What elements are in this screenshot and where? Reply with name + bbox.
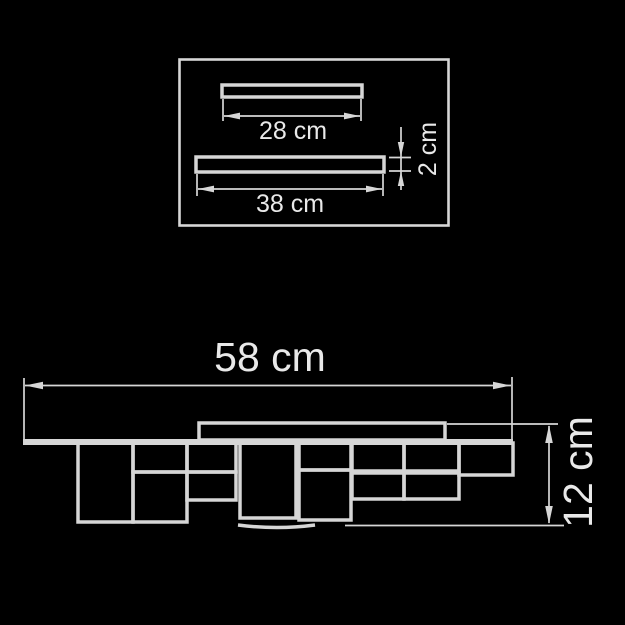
crystal-box — [299, 470, 351, 520]
crystal-box — [133, 443, 187, 472]
top-view-panel: 28 cm 38 cm 2 cm — [180, 60, 449, 226]
dim-58cm-label: 58 cm — [214, 334, 326, 380]
crystal-box — [187, 472, 236, 500]
arrow-left-icon — [25, 382, 43, 390]
dim-2cm-label: 2 cm — [414, 122, 442, 176]
dim-38cm-label: 38 cm — [256, 190, 324, 218]
crystal-box — [78, 443, 133, 522]
bottom-dish — [238, 525, 315, 528]
crystal-box — [299, 443, 351, 470]
crystal-box-center — [240, 443, 296, 518]
arrow-up-icon — [398, 171, 404, 186]
bar-38cm — [196, 157, 384, 172]
dim-28cm-label: 28 cm — [259, 117, 327, 145]
dim-2cm: 2 cm — [389, 122, 442, 190]
arrow-right-icon — [493, 382, 511, 390]
arrow-left-icon — [224, 113, 240, 120]
dim-58cm: 58 cm — [24, 334, 512, 441]
crystal-box — [133, 472, 187, 522]
dim-28cm: 28 cm — [223, 99, 361, 145]
dim-12cm-label: 12 cm — [555, 416, 601, 528]
arrow-left-icon — [198, 186, 214, 193]
crystal-box — [459, 443, 513, 475]
arrow-right-icon — [344, 113, 360, 120]
arrow-down-icon — [398, 142, 404, 157]
ceiling-light-dimension-drawing: 28 cm 38 cm 2 cm 58 cm — [0, 0, 625, 625]
arrow-right-icon — [366, 186, 382, 193]
crystal-box — [187, 443, 236, 472]
arrow-up-icon — [545, 425, 553, 443]
crystal-box — [404, 473, 459, 499]
dim-38cm: 38 cm — [197, 174, 383, 218]
crystal-box — [352, 443, 404, 471]
front-view-fixture: 58 cm 12 cm — [23, 334, 601, 528]
drawing-canvas: 28 cm 38 cm 2 cm 58 cm — [0, 0, 625, 625]
crystal-box — [404, 443, 459, 471]
bar-28cm — [222, 85, 362, 97]
raised-plate — [199, 423, 445, 440]
arrow-down-icon — [545, 506, 553, 524]
crystal-box — [352, 473, 404, 499]
